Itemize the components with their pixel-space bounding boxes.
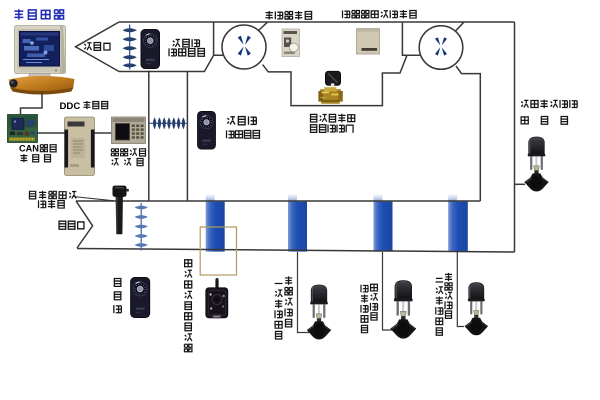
svg-text:DDC: DDC xyxy=(60,101,81,112)
svg-text:CAN: CAN xyxy=(19,144,39,154)
